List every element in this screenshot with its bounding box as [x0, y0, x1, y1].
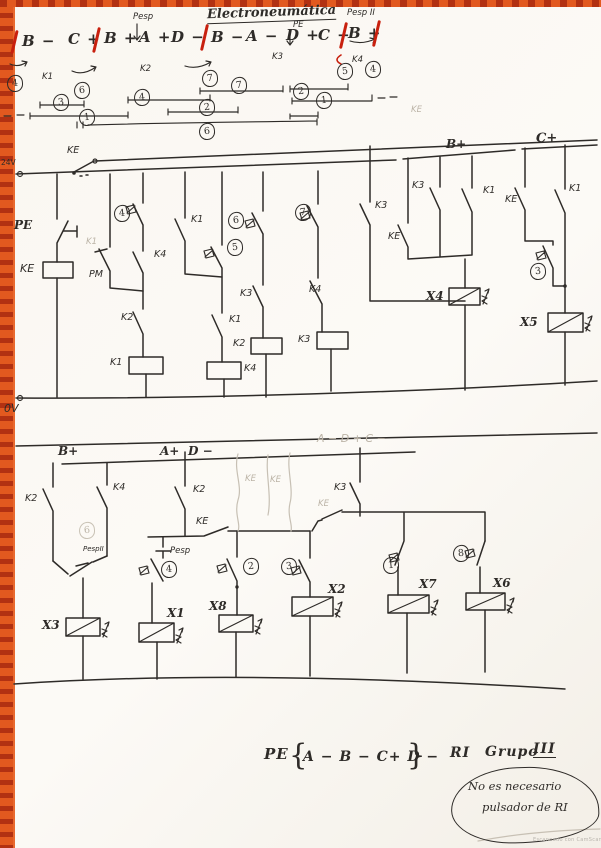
- ke-coil-label: KE: [20, 263, 34, 274]
- seq-token: D −: [171, 30, 205, 45]
- faint-ke-label: KE: [411, 106, 422, 115]
- k3-coil: [317, 332, 348, 349]
- valve-x3-symbol: [66, 618, 109, 637]
- k2-contact-label: K2: [121, 313, 133, 323]
- brace-right: }: [407, 738, 425, 772]
- faint-k1-label: K1: [86, 238, 97, 247]
- seq-token: B −: [211, 30, 244, 45]
- seq-token: B −: [22, 34, 55, 49]
- grupo-label: Grupo: [485, 745, 539, 759]
- k1-coil-label: K1: [110, 358, 122, 368]
- cplus-rail-label: C+: [536, 132, 557, 145]
- k3-contact-label: K3: [412, 181, 424, 191]
- k1-coil: [129, 357, 163, 374]
- ke-switch-label: KE: [67, 146, 79, 156]
- k3-step-label: K3: [272, 53, 283, 62]
- limit-switch-5-symbol: [204, 249, 214, 258]
- k1-contact-label: K1: [483, 186, 495, 196]
- lower-bottom-rail: [14, 677, 565, 689]
- ke-contact-label: KE: [196, 517, 208, 527]
- k1-contact-label: K1: [191, 215, 203, 225]
- erased-pencil-lines: [237, 453, 292, 531]
- valve-x6-symbol: [466, 593, 514, 613]
- bplus-rail-label: B+: [446, 138, 466, 150]
- valve-x1-symbol: [139, 623, 183, 643]
- valve-x2-label: X2: [328, 583, 346, 595]
- k1-contact-label: K1: [569, 184, 581, 194]
- pesp-annotation: Pesp: [133, 13, 153, 22]
- k2-coil: [251, 338, 282, 354]
- k2-contact-label: K2: [193, 485, 205, 495]
- ke-contact-label: KE: [505, 195, 517, 205]
- bplus-phase-label: B+: [58, 445, 78, 457]
- k2-contact-label: K2: [25, 494, 37, 504]
- k1-contact-label: K1: [229, 315, 241, 325]
- k4-contact-label: K4: [113, 483, 125, 493]
- dminus-phase-label: D −: [188, 445, 213, 457]
- valve-x7-symbol: [388, 595, 438, 615]
- red-curl-mark: [337, 55, 341, 64]
- rail-24v-label: 24V: [1, 159, 16, 167]
- circuit-drawing: [0, 0, 601, 848]
- pesp2-button-label: PespII: [83, 546, 104, 553]
- scanner-watermark: Escaneado con CamScanner: [533, 838, 601, 843]
- valve-x4-symbol: [449, 288, 489, 305]
- valve-x3-label: X3: [42, 619, 60, 631]
- valve-x4-label: X4: [426, 290, 444, 302]
- aplus-phase-label: A+: [160, 445, 179, 457]
- k4-coil: [207, 362, 241, 379]
- valve-x8-symbol: [219, 615, 262, 634]
- note-line-1: No es necesario: [468, 781, 561, 793]
- footer-pe-label: PE: [264, 747, 289, 762]
- seq-token: B +: [104, 31, 137, 46]
- upper-rail-switched: [95, 140, 597, 161]
- pesp-button-label: Pesp: [170, 547, 190, 556]
- faint-ke-label: KE: [270, 476, 281, 485]
- lower-rails: [16, 433, 597, 464]
- upper-rail-0v: [16, 381, 597, 398]
- valve-x2-symbol: [292, 597, 342, 617]
- k3-contact-label: K3: [375, 201, 387, 211]
- valve-x8-label: X8: [209, 600, 227, 612]
- valve-x1-label: X1: [167, 607, 185, 619]
- k2-step-label: K2: [140, 65, 151, 74]
- seq-token: D +: [286, 28, 320, 43]
- valve-x7-label: X7: [419, 578, 437, 590]
- valve-x5-symbol: [548, 313, 592, 332]
- upper-rail-24v: [16, 145, 597, 174]
- faint-ke-label: KE: [245, 475, 256, 484]
- limit-switch-3-symbol: [536, 251, 546, 260]
- pesp2-annotation: Pesp II: [347, 9, 375, 18]
- pe-annotation: PE: [293, 21, 304, 30]
- pe-contact-label: PE: [14, 219, 32, 231]
- scanned-page: Electroneumática B − C + B + A + D − B −…: [0, 0, 601, 848]
- ke-coil: [43, 262, 73, 278]
- valve-x6-label: X6: [493, 577, 511, 589]
- group-number: III: [533, 742, 556, 758]
- limit-switch-4-symbol-lower: [139, 566, 149, 575]
- limit-switch-2-symbol: [217, 564, 227, 573]
- k4-contact-label: K4: [154, 250, 166, 260]
- seq-token: A −: [246, 29, 278, 44]
- ri-label: RI: [450, 746, 470, 760]
- limit-switch-6-symbol: [245, 219, 255, 228]
- faint-phase-label: A − D + C −: [317, 433, 386, 444]
- upper-ladder: [16, 140, 597, 401]
- k3-contact-label: K3: [240, 289, 252, 299]
- pm-contact-label: PM: [89, 270, 103, 280]
- valve-x5-label: X5: [520, 316, 538, 328]
- k3-coil-label: K3: [298, 335, 310, 345]
- k4-coil-label: K4: [244, 364, 256, 374]
- seq-token: A +: [139, 30, 171, 45]
- k4-contact-label: K4: [309, 285, 321, 295]
- k4-step-label: K4: [352, 56, 363, 65]
- faint-ke-label: KE: [318, 500, 329, 509]
- note-line-2: pulsador de RI: [482, 802, 568, 814]
- ke-contact-label: KE: [388, 232, 400, 242]
- k2-coil-label: K2: [233, 339, 245, 349]
- k1-step-label: K1: [42, 73, 53, 82]
- k3-contact-label: K3: [334, 483, 346, 493]
- rail-0v-label: 0V: [4, 403, 19, 414]
- ke-knife-switch: [74, 161, 94, 176]
